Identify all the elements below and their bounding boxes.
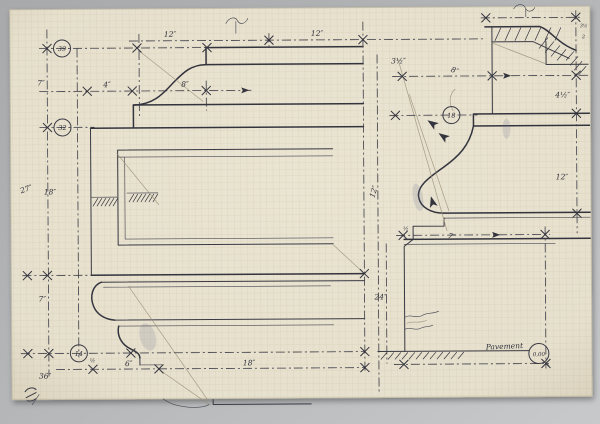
dim-4: 4″ [102, 80, 111, 89]
dim-8-left: 8″ [181, 80, 189, 89]
dim-3half: 3½″ [391, 56, 406, 65]
level-39-value: 39 [58, 45, 66, 53]
datum-value: 0,00 [533, 352, 546, 358]
dim-18-bottom: 18″ [243, 358, 256, 367]
dim-6: 6″ [125, 359, 133, 368]
drawing-canvas: 39 32 14 18 0,00 12″ 12″ 4 [0, 0, 600, 424]
dim-4half: 4½″ [554, 90, 570, 99]
dim-12-right-col: 12″ [556, 172, 569, 181]
level-32-value: 32 [58, 124, 66, 132]
dim-7-upper: 7″ [37, 79, 45, 88]
pavement-label: Pavement [485, 341, 525, 352]
dim-12-top-right: 12″ [311, 29, 324, 38]
dim-12-top-left: 12″ [164, 30, 177, 39]
level-14-value: 14 [75, 350, 83, 358]
dim-half-a: ½ [90, 357, 95, 364]
dim-tiny-2: 2 [581, 34, 585, 40]
dim-7-lower: 7″ [38, 295, 46, 304]
dim-36: 36″ [39, 372, 52, 381]
dim-half-b: ½ [403, 225, 408, 232]
dim-24: 24″ [373, 292, 387, 301]
level-18-value: 18 [447, 112, 455, 120]
dim-18-left: 18″ [44, 187, 57, 196]
photographed-drawing-scene: 39 32 14 18 0,00 12″ 12″ 4 [0, 0, 600, 424]
graph-paper-sheet: 39 32 14 18 0,00 12″ 12″ 4 [10, 4, 592, 408]
